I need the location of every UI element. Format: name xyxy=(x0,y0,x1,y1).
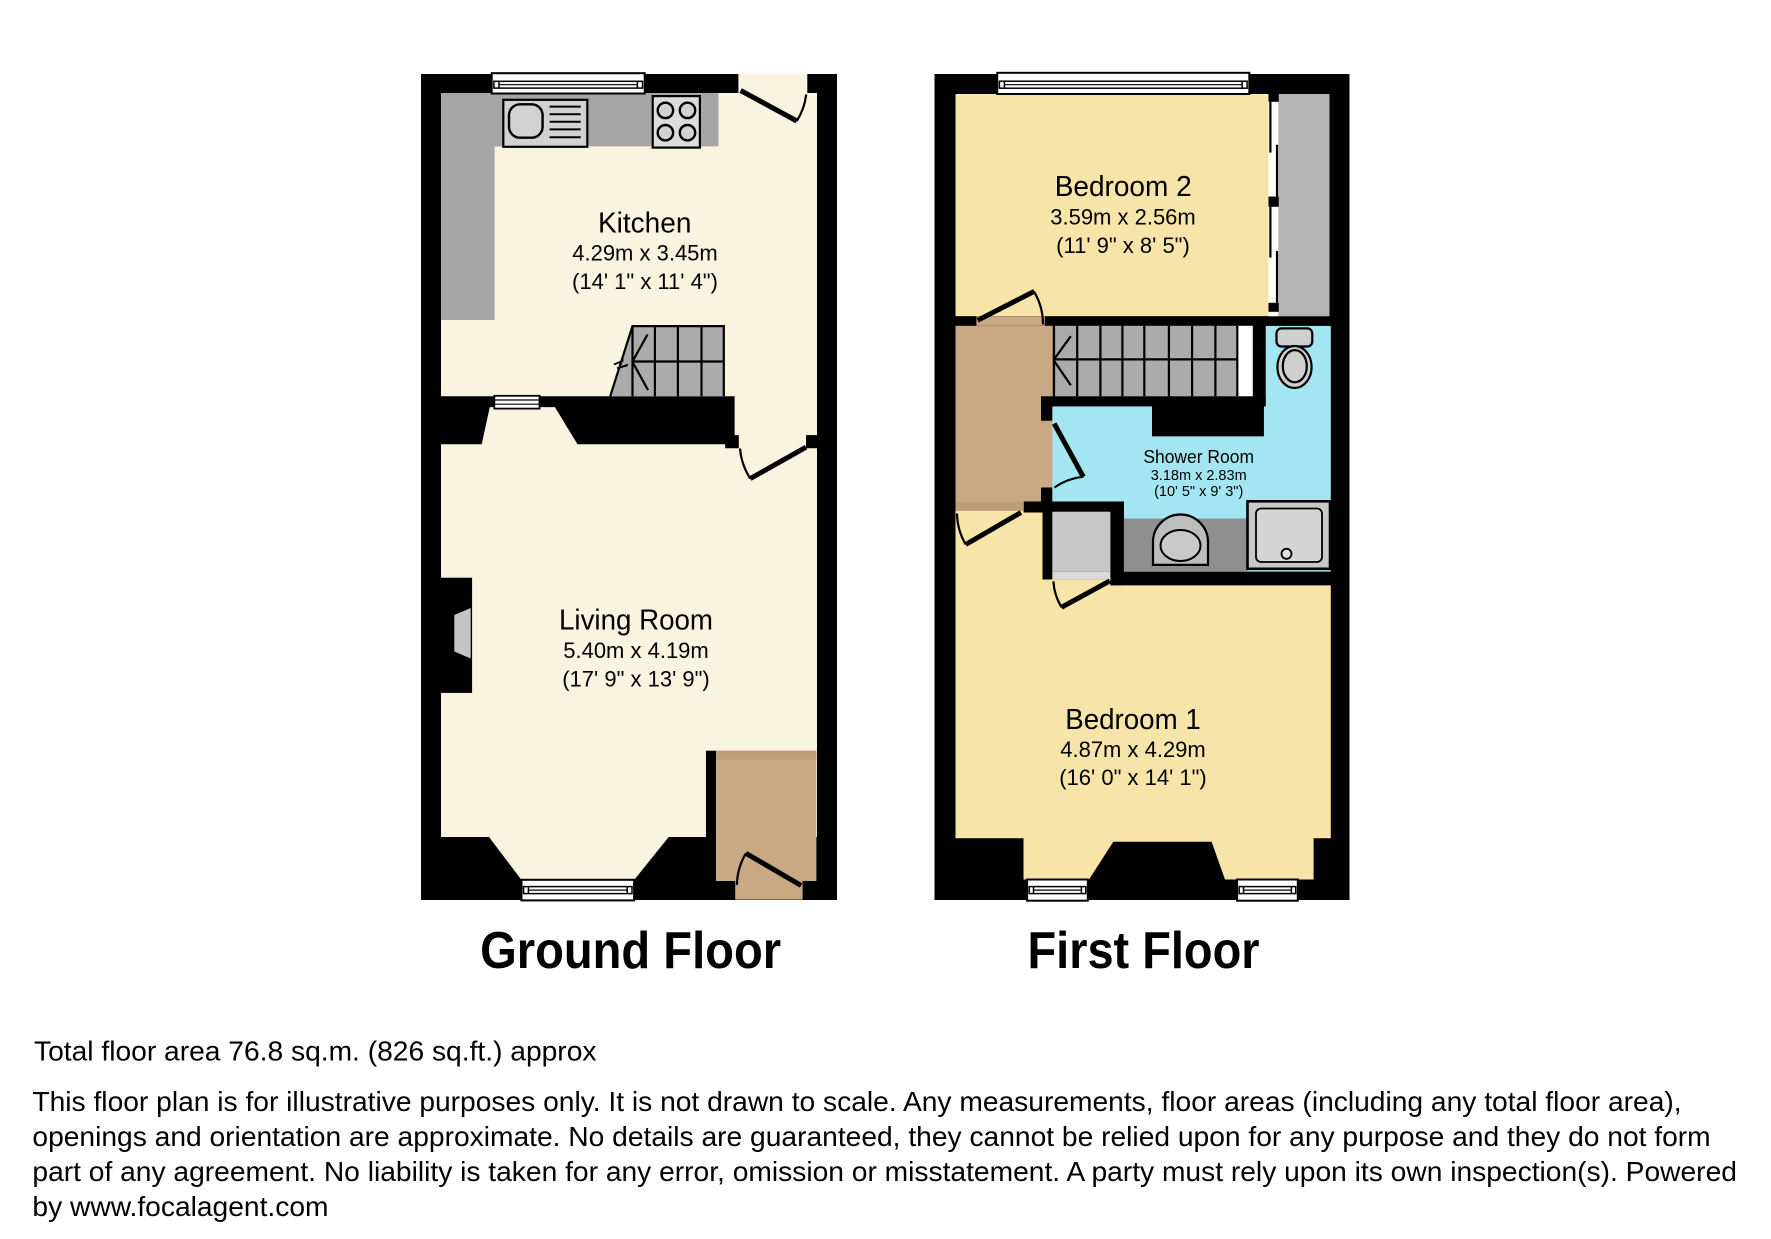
svg-text:3.18m x 2.83m: 3.18m x 2.83m xyxy=(1151,468,1247,484)
svg-text:4.29m x 3.45m: 4.29m x 3.45m xyxy=(572,241,718,266)
svg-text:Kitchen: Kitchen xyxy=(598,207,692,239)
svg-text:Shower Room: Shower Room xyxy=(1143,446,1254,467)
svg-text:by www.focalagent.com: by www.focalagent.com xyxy=(32,1190,328,1222)
svg-text:Bedroom 1: Bedroom 1 xyxy=(1065,704,1201,736)
svg-text:4.87m x 4.29m: 4.87m x 4.29m xyxy=(1060,737,1206,762)
svg-text:Bedroom 2: Bedroom 2 xyxy=(1055,171,1192,203)
svg-text:Ground Floor: Ground Floor xyxy=(480,921,781,979)
svg-text:5.40m x 4.19m: 5.40m x 4.19m xyxy=(563,638,709,663)
svg-text:(16' 0" x 14' 1"): (16' 0" x 14' 1") xyxy=(1059,765,1207,790)
svg-text:Living Room: Living Room xyxy=(559,605,713,637)
svg-text:(10' 5" x 9' 3"): (10' 5" x 9' 3") xyxy=(1154,484,1243,500)
svg-text:part of any agreement. No liab: part of any agreement. No liability is t… xyxy=(32,1155,1737,1187)
svg-text:First Floor: First Floor xyxy=(1028,921,1260,979)
svg-text:(17' 9" x 13' 9"): (17' 9" x 13' 9") xyxy=(562,666,710,691)
svg-text:3.59m x 2.56m: 3.59m x 2.56m xyxy=(1050,205,1196,230)
svg-text:(14' 1" x 11' 4"): (14' 1" x 11' 4") xyxy=(572,269,718,294)
svg-text:(11' 9" x 8' 5"): (11' 9" x 8' 5") xyxy=(1056,233,1190,258)
svg-text:Total floor area 76.8 sq.m. (8: Total floor area 76.8 sq.m. (826 sq.ft.)… xyxy=(34,1034,596,1066)
svg-text:This floor plan is for illustr: This floor plan is for illustrative purp… xyxy=(32,1085,1681,1117)
svg-text:openings and orientation are a: openings and orientation are approximate… xyxy=(32,1120,1710,1152)
